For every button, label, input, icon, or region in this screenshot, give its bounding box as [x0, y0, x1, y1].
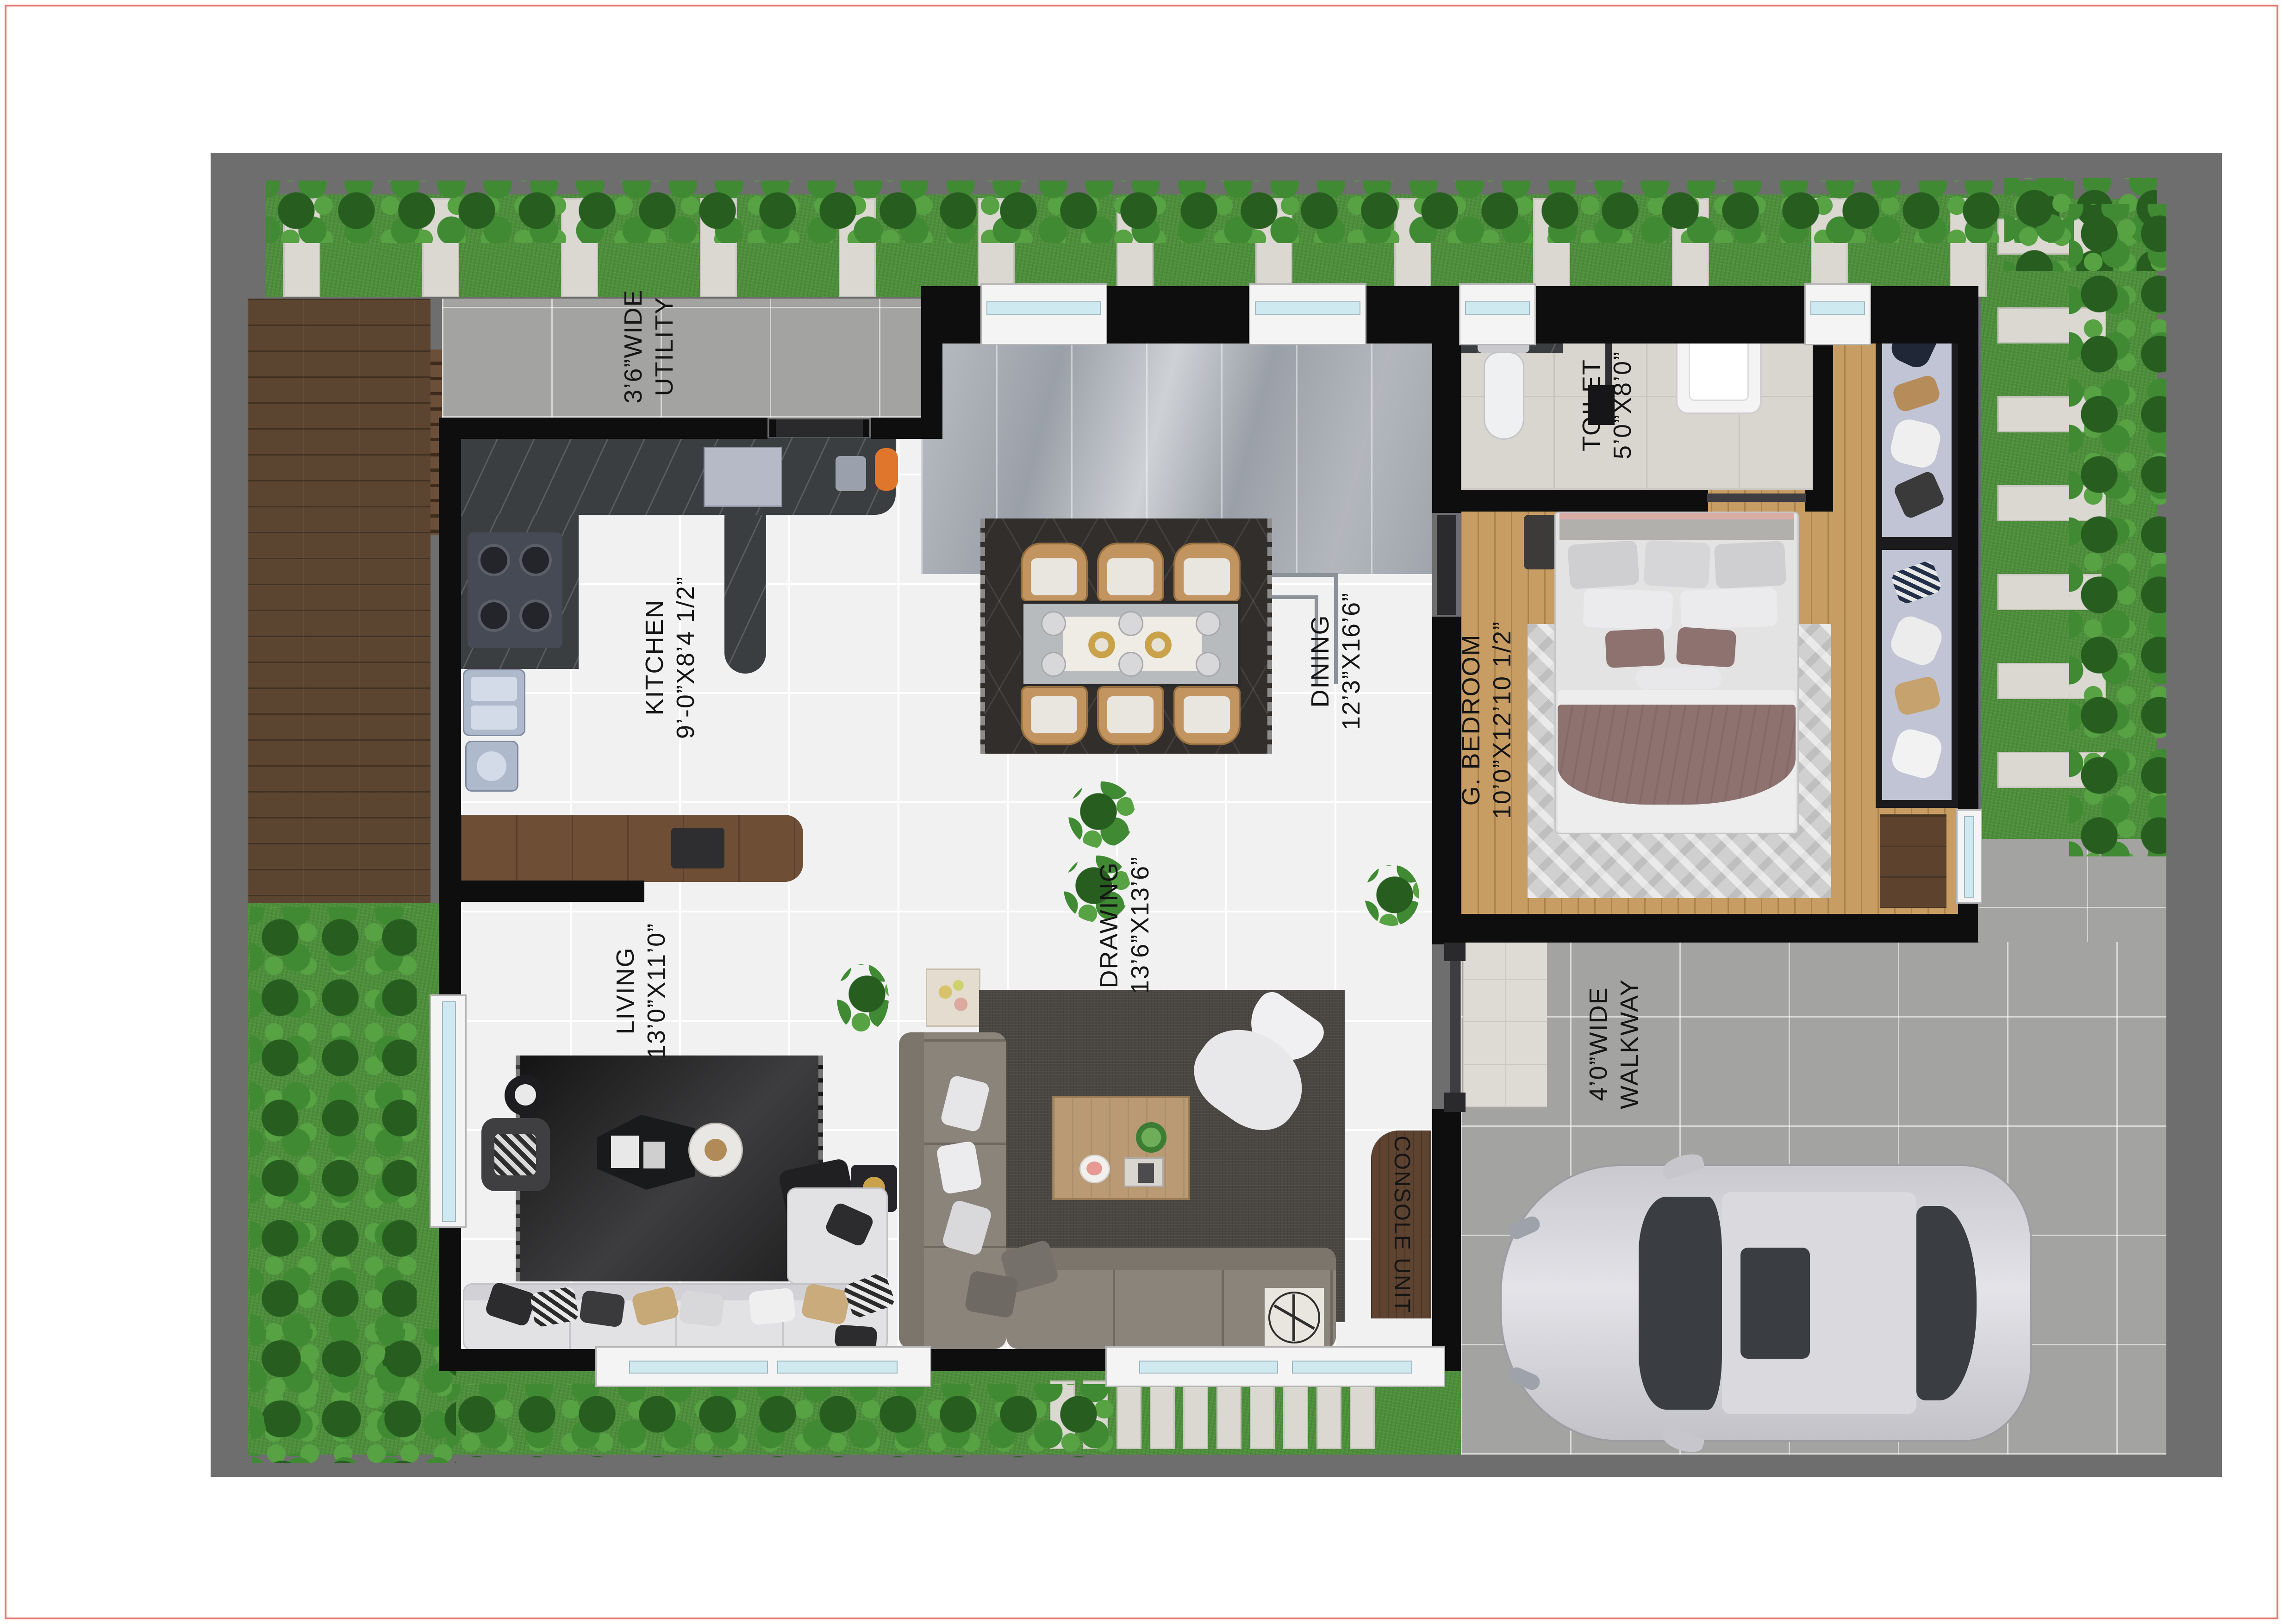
sink-bowl: [471, 706, 517, 730]
dining-chair: [1021, 686, 1088, 745]
stepping-stone: [1183, 1380, 1208, 1449]
label-console-unit: CONSOLE UNIT: [1388, 1136, 1416, 1313]
car-windshield: [1639, 1197, 1722, 1410]
place-setting: [1041, 652, 1066, 677]
stepping-stone: [1250, 1380, 1275, 1449]
kitchen-cabinet: [461, 815, 803, 882]
dining-chair: [1173, 686, 1241, 745]
clothes-item: [1890, 559, 1943, 606]
stepping-stone: [1150, 1380, 1175, 1449]
clothes-item: [1887, 612, 1946, 669]
wood-deck: [248, 299, 430, 903]
window-top: [1804, 283, 1871, 345]
label-console-line1: CONSOLE UNIT: [1388, 1136, 1416, 1313]
label-living-line1: LIVING: [610, 923, 641, 1059]
centerpiece: [1145, 631, 1172, 658]
sofa-pillow: [748, 1287, 796, 1325]
label-walkway-line1: 4’0”WIDE: [1583, 979, 1614, 1109]
label-walkway-line2: WALKWAY: [1614, 979, 1645, 1109]
wall-toilet-bottom: [1805, 490, 1833, 512]
entry-door-cap: [1444, 1093, 1466, 1112]
label-bedroom-line1: G. BEDROOM: [1456, 621, 1487, 819]
side-table-marble: [688, 1123, 743, 1177]
label-drawing: DRAWING 13’6”X13’6”: [1094, 856, 1156, 994]
wall-center-vertical: [1432, 286, 1461, 513]
label-utility-line1: 3’6”WIDE: [618, 289, 649, 403]
place-setting: [1118, 611, 1143, 636]
label-dining: DINING 12’3”X16’6”: [1305, 592, 1367, 730]
label-utility-line2: UTILITY: [649, 289, 680, 403]
clothes-item: [1889, 726, 1945, 781]
clothes-item: [1892, 470, 1946, 520]
label-drawing-line2: 13’6”X13’6”: [1125, 856, 1156, 994]
table-plant: [1136, 1122, 1166, 1153]
sink-bowl: [471, 677, 517, 701]
hedge-right: [2069, 204, 2166, 856]
window-bottom-drawing: [1105, 1346, 1445, 1387]
gas-stove: [468, 532, 562, 648]
label-bedroom: G. BEDROOM 10’0”X12’10 1/2”: [1456, 621, 1518, 819]
wall-utility-side: [921, 286, 942, 439]
window-bedroom-right: [1956, 809, 1982, 904]
dining-chair: [1097, 543, 1164, 602]
dining-chair: [1173, 543, 1241, 602]
fruit-bowl: [1079, 1155, 1110, 1183]
burner: [478, 544, 510, 576]
label-kitchen: KITCHEN 9’-0”X8’4 1/2”: [639, 576, 701, 739]
label-bedroom-line2: 10’0”X12’10 1/2”: [1487, 621, 1518, 819]
bed-pillow: [1583, 588, 1673, 631]
wall-utility-bottom: [439, 418, 767, 439]
stepping-stone: [1117, 1380, 1141, 1449]
bed-cushion: [1676, 627, 1736, 668]
bed-pillow: [1714, 541, 1787, 589]
nightstand: [1524, 515, 1556, 569]
tree-bottom-left: [252, 1329, 456, 1463]
potted-plant: [1365, 865, 1419, 926]
kitchen-peninsula: [724, 515, 766, 674]
hedge-top: [266, 181, 2074, 243]
blanket: [1558, 705, 1796, 805]
label-dining-line2: 12’3”X16’6”: [1336, 592, 1367, 730]
label-drawing-line1: DRAWING: [1094, 856, 1125, 994]
label-walkway: 4’0”WIDE WALKWAY: [1583, 979, 1645, 1109]
drawing-coffee-table: [1052, 1096, 1190, 1200]
dining-chair: [1097, 686, 1164, 745]
clothes-item: [1893, 675, 1942, 717]
entry-door-cap: [1444, 942, 1466, 961]
label-kitchen-line2: 9’-0”X8’4 1/2”: [670, 576, 701, 739]
serving-tray: [1124, 1157, 1164, 1187]
wall-center-vertical: [1432, 1109, 1461, 1371]
centerpiece: [1088, 631, 1115, 658]
wardrobe-section: [1882, 550, 1952, 800]
stepping-stone: [1216, 1380, 1241, 1449]
kitchen-sink-double: [463, 669, 525, 736]
clothes-item: [1888, 416, 1943, 470]
place-setting: [1041, 611, 1066, 636]
place-setting: [1196, 611, 1221, 636]
headboard-trim: [1559, 513, 1794, 519]
label-living-line2: 13’0”X11’0”: [641, 923, 672, 1059]
stepping-stone: [1350, 1380, 1375, 1449]
bed: [1554, 512, 1799, 834]
window-top: [1459, 283, 1536, 345]
burner: [478, 600, 510, 632]
sofa-pillow: [579, 1290, 626, 1328]
kitchen-counter-top: [461, 437, 896, 515]
wc-toilet-bowl: [1484, 352, 1524, 440]
window-top: [980, 283, 1107, 345]
label-utility: 3’6”WIDE UTILITY: [618, 289, 680, 403]
wall-utility-bottom: [871, 418, 942, 439]
dining-table: [1021, 601, 1241, 687]
blender-orange: [875, 448, 898, 491]
burner: [519, 544, 552, 576]
label-toilet: TOILET 5’0”X8’0”: [1576, 351, 1638, 459]
utility-door: [769, 419, 869, 437]
entry-sliding-door: [1450, 945, 1460, 1108]
window-bottom-living: [595, 1346, 931, 1387]
bed-pillow: [1567, 540, 1640, 589]
wardrobe: [1876, 293, 1960, 808]
place-setting: [1196, 652, 1221, 677]
hedge-bottom: [447, 1384, 1120, 1457]
dishwasher: [704, 447, 782, 507]
wall-bedroom-bottom: [1432, 914, 1978, 943]
side-table-lamp: [505, 1075, 546, 1116]
flower-tray: [926, 968, 980, 1027]
label-toilet-line1: TOILET: [1576, 351, 1607, 459]
ceiling-fan-symbol: [1265, 1288, 1324, 1347]
potted-plant: [837, 964, 889, 1033]
burner: [519, 600, 552, 632]
toilet-sliding-door: [1707, 493, 1806, 502]
coffee-maker: [836, 456, 866, 491]
label-kitchen-line1: KITCHEN: [639, 576, 670, 739]
bed-bolster: [1635, 668, 1722, 689]
bed-pillow: [1644, 540, 1711, 588]
floor-plan-page: 3’6”WIDE UTILITY KITCHEN 9’-0”X8’4 1/2” …: [0, 0, 2283, 1624]
potted-plant: [1068, 781, 1135, 848]
cabinet-appliance: [671, 828, 724, 868]
wall-toilet-bottom: [1432, 490, 1708, 512]
stepping-stone: [1316, 1380, 1341, 1449]
label-dining-line1: DINING: [1305, 592, 1336, 730]
clothes-item: [1891, 374, 1942, 414]
bed-pillow: [1680, 587, 1778, 629]
label-toilet-line2: 5’0”X8’0”: [1607, 351, 1638, 459]
stepping-stone: [1283, 1380, 1308, 1449]
dining-chair: [1021, 543, 1088, 602]
bed-cushion: [1605, 628, 1665, 668]
sofa-pillow: [936, 1140, 983, 1194]
sofa-pillow: [964, 1270, 1019, 1319]
armchair: [481, 1118, 550, 1191]
wall-kitchen-stub: [439, 881, 644, 902]
utility-area: [442, 299, 930, 418]
window-top: [1249, 283, 1366, 345]
car-sunroof: [1740, 1248, 1810, 1359]
place-setting: [1118, 652, 1143, 677]
sofa-pillow: [679, 1290, 725, 1327]
sink-bowl: [477, 751, 506, 781]
dresser: [1880, 814, 1946, 908]
window-left-living: [430, 994, 467, 1228]
kitchen-sink-single: [465, 741, 518, 792]
bedroom-door: [1437, 515, 1456, 615]
car: [1500, 1164, 2032, 1442]
entry-porch: [1463, 943, 1547, 1107]
label-living: LIVING 13’0”X11’0”: [610, 923, 672, 1059]
